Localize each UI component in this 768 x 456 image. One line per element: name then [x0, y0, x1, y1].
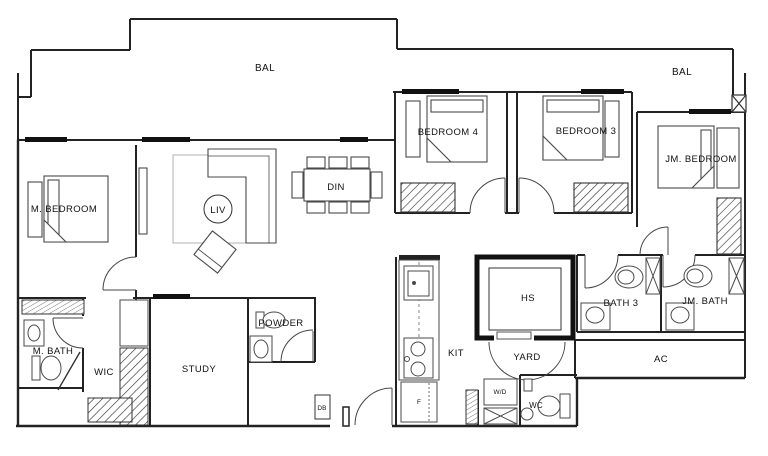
label-m-bath: M. BATH [33, 346, 74, 357]
bath3-door [585, 255, 618, 288]
bedroom4-furniture [401, 96, 487, 212]
wic-closet-open [120, 300, 148, 346]
dining-chair [307, 157, 325, 168]
dining-chair [307, 202, 325, 213]
jm-bedroom-door [640, 227, 668, 255]
m-bath-toilet [41, 356, 61, 380]
dining-chair [351, 202, 369, 213]
label-kit: KIT [448, 348, 464, 359]
label-powder: POWDER [258, 318, 303, 329]
powder-door [281, 330, 313, 362]
label-db: DB [317, 405, 326, 412]
laundry-box [484, 408, 517, 424]
bath3-fixtures [581, 258, 660, 330]
window-bar [142, 137, 190, 142]
window-bar [689, 109, 731, 114]
bedroom3-furniture [543, 96, 628, 212]
dining-chair [351, 157, 369, 168]
m-bath-sink [24, 320, 44, 346]
kitchen-fixtures [399, 255, 440, 422]
label-jm-bath: JM. BATH [682, 296, 728, 307]
label-fridge: F [417, 399, 421, 406]
ac-ledge-marker [732, 95, 746, 112]
label-wic: WIC [94, 367, 114, 378]
wic-closet-bottom [88, 398, 132, 422]
bedroom4-door [470, 178, 505, 213]
jm-bedroom-furniture [658, 126, 741, 254]
bed4-pillow [431, 100, 483, 112]
label-din: DIN [327, 182, 345, 193]
bath3-toilet [615, 266, 643, 288]
dining-chair [329, 202, 347, 213]
dining-chair [329, 157, 347, 168]
floorplan-canvas: BAL BAL BEDROOM 4 BEDROOM 3 JM. BEDROOM … [0, 0, 768, 456]
m-bath-shower-screen [58, 352, 80, 390]
yard-fixtures [466, 379, 517, 424]
m-bath-vanity-counter [22, 300, 84, 314]
label-study: STUDY [182, 364, 216, 375]
label-liv: LIV [210, 205, 226, 216]
jm-bath-shower [729, 258, 744, 294]
wc-fixtures [521, 379, 570, 420]
bedroom3-door [519, 178, 554, 213]
coffee-table [194, 231, 236, 273]
kitchen-counter-cap [399, 255, 440, 260]
bath3-shower [646, 258, 660, 294]
m-bath-fixtures [22, 300, 84, 390]
label-bedroom4: BEDROOM 4 [418, 127, 479, 138]
m-bedroom-door [103, 257, 136, 290]
label-m-bedroom: M. BEDROOM [31, 204, 97, 215]
window-bar [581, 89, 624, 94]
window-bar [402, 89, 459, 94]
window-bar [340, 137, 368, 142]
wc-cistern [524, 379, 532, 391]
jm-bath-toilet [684, 265, 712, 287]
label-yard: YARD [513, 352, 540, 363]
dining-chair [371, 172, 382, 198]
stove [404, 338, 433, 378]
bedroom3-wardrobe [574, 183, 628, 212]
window-bar [153, 294, 190, 299]
jm-bath-fixtures [666, 258, 744, 330]
bed3-pillow [547, 100, 599, 112]
hs-door-jamb [497, 332, 531, 339]
yard-louvre [466, 390, 478, 424]
dining-chair [292, 172, 303, 198]
label-bal-right: BAL [672, 67, 692, 78]
m-bath-toilet-tank [32, 356, 40, 380]
wic-fixtures [88, 300, 148, 425]
label-jm-bedroom: JM. BEDROOM [665, 154, 736, 165]
floorplan: BAL BAL BEDROOM 4 BEDROOM 3 JM. BEDROOM … [0, 0, 768, 456]
label-hs: HS [521, 293, 535, 304]
m-bedroom-tv-console [139, 168, 147, 234]
m-bath-door [53, 318, 83, 348]
window-bar [25, 137, 67, 142]
kitchen-sink-tap [413, 282, 416, 285]
bedroom4-wardrobe [401, 183, 455, 212]
label-bath3: BATH 3 [604, 298, 639, 309]
label-wc: WC [529, 401, 543, 410]
wc-toilet-tank [560, 394, 570, 418]
label-wd: W/D [494, 389, 507, 396]
jm-wardrobe [717, 198, 741, 254]
label-ac: AC [654, 354, 668, 365]
entrance-door [355, 388, 392, 425]
entrance-pier [343, 407, 349, 426]
label-bal-left: BAL [255, 63, 275, 74]
label-bedroom3: BEDROOM 3 [556, 126, 617, 137]
